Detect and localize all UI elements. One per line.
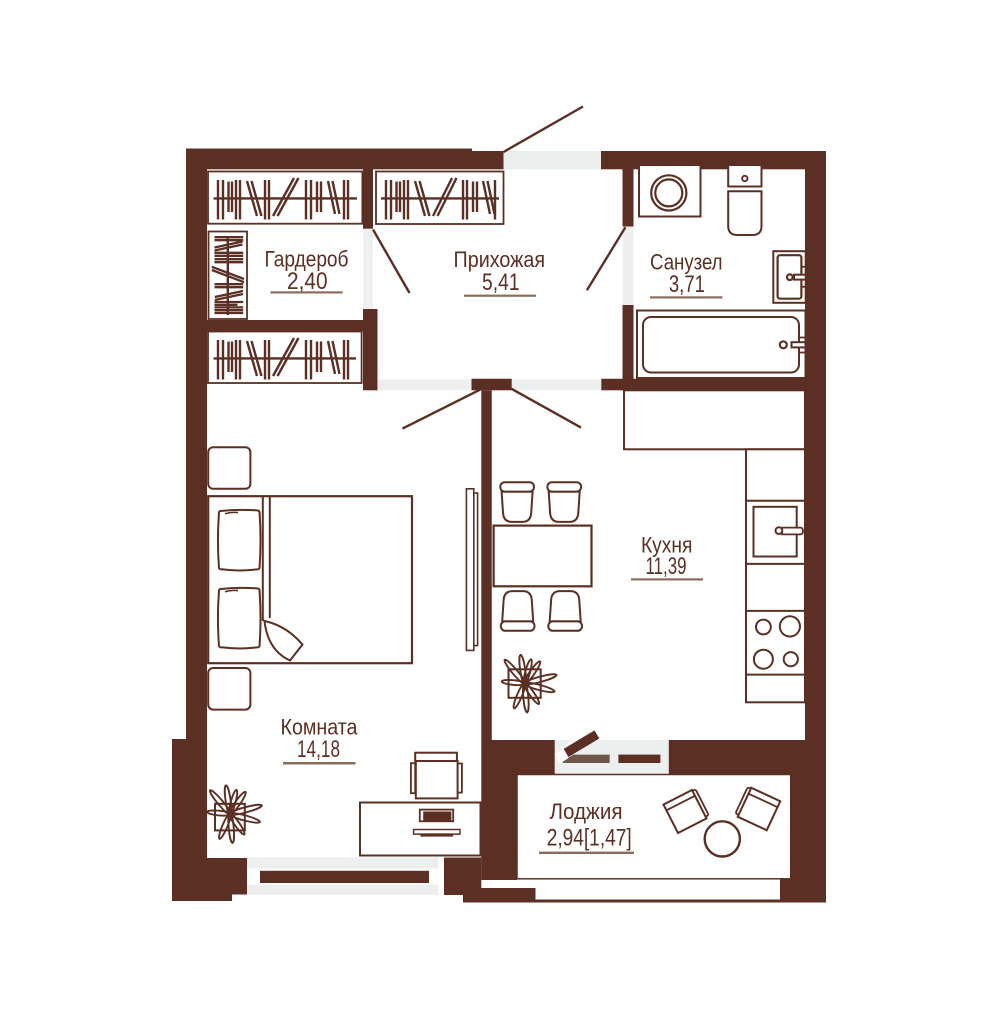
svg-text:3,71: 3,71 [669,271,705,298]
svg-text:2,94[1,47]: 2,94[1,47] [547,825,632,852]
svg-text:5,41: 5,41 [482,269,520,296]
svg-text:11,39: 11,39 [646,553,687,580]
svg-text:14,18: 14,18 [297,736,340,763]
svg-text:2,40: 2,40 [287,268,328,295]
svg-text:Лоджия: Лоджия [550,799,623,824]
